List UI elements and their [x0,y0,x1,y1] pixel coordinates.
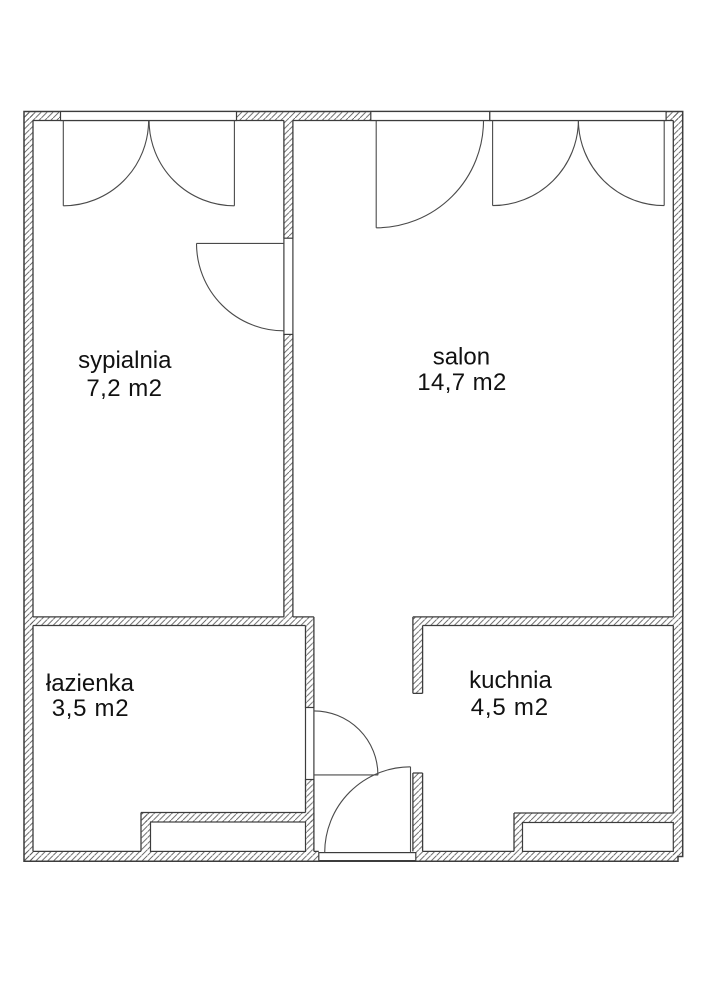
svg-text:4,5 m2: 4,5 m2 [471,694,549,721]
svg-text:3,5 m2: 3,5 m2 [52,695,130,722]
svg-text:kuchnia: kuchnia [469,667,552,694]
svg-text:14,7 m2: 14,7 m2 [417,369,507,396]
svg-text:7,2 m2: 7,2 m2 [86,375,162,402]
svg-text:sypialnia: sypialnia [78,347,172,374]
svg-text:salon: salon [433,344,490,371]
svg-text:łazienka: łazienka [46,670,135,697]
